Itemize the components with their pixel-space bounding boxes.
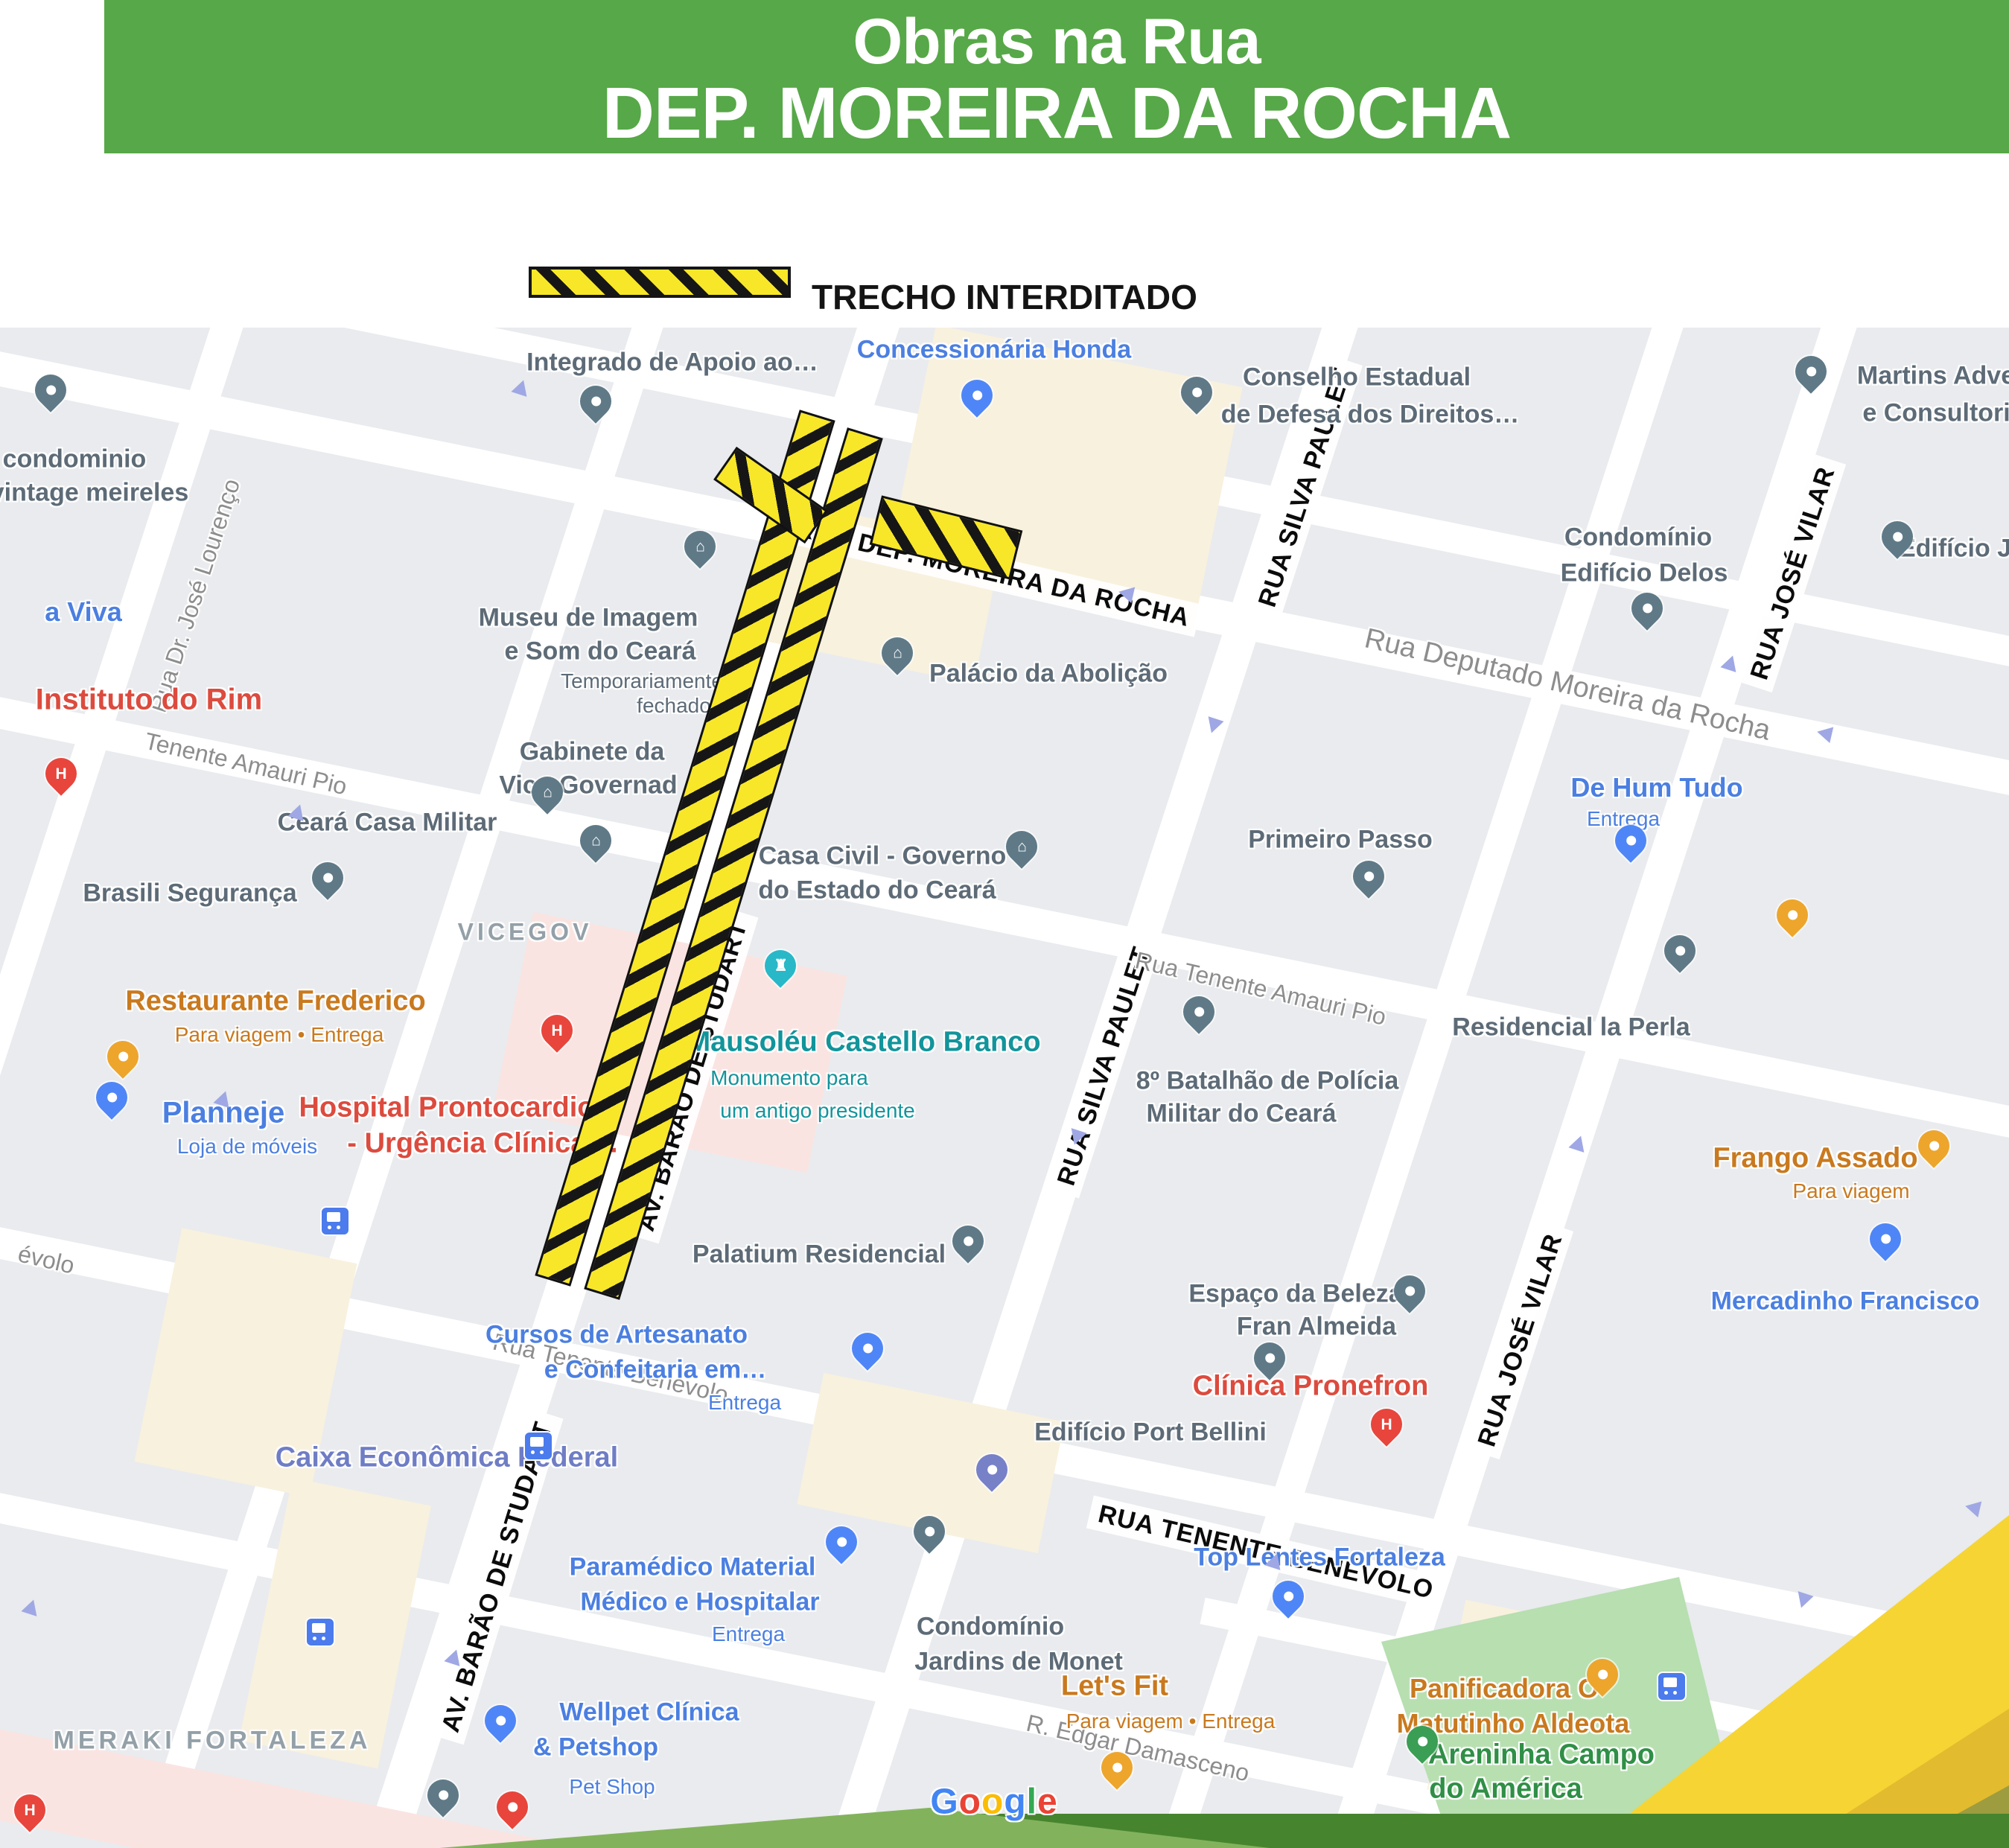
poi-label: e Som do Ceará — [505, 637, 696, 666]
map-pin: ⌂ — [580, 825, 611, 856]
poi-label: Gabinete da — [520, 738, 665, 767]
poi-label: Caixa Econômica Federal — [276, 1442, 618, 1474]
poi-pin-icon — [1346, 854, 1390, 898]
map-pin: H — [1371, 1409, 1402, 1440]
museum-pin-icon: ⌂ — [999, 824, 1043, 868]
hospital-pin-icon: H — [39, 751, 83, 795]
google-logo-letter: l — [1027, 1782, 1037, 1822]
map-pin — [485, 1705, 516, 1736]
poi-pin-icon — [1095, 1745, 1139, 1789]
poi-label: Mausoléu Castello Branco — [687, 1027, 1040, 1059]
map-pin — [1664, 935, 1696, 966]
museum-pin-icon: ⌂ — [678, 524, 722, 568]
map-pin — [107, 1041, 139, 1072]
hospital-pin-icon: H — [1364, 1402, 1408, 1446]
poi-pin-icon — [1658, 928, 1701, 972]
map-pin: ⌂ — [1006, 831, 1037, 862]
map-pin — [427, 1780, 459, 1811]
poi-label: Conselho Estadual — [1243, 363, 1471, 392]
poi-label: Loja de móveis — [177, 1135, 317, 1159]
header-title-line2: DEP. MOREIRA DA ROCHA — [104, 76, 2009, 150]
legend-label: TRECHO INTERDITADO — [812, 249, 1197, 317]
poi-pin-icon — [970, 1447, 1013, 1491]
poi-pin-icon — [1247, 1336, 1291, 1380]
poi-label: um antigo presidente — [720, 1099, 915, 1123]
museum-pin-icon: ⌂ — [573, 818, 617, 862]
google-logo-letter: o — [959, 1782, 981, 1822]
poi-label: Paramédico Material — [570, 1553, 816, 1582]
poi-pin-icon — [1177, 990, 1220, 1033]
map-pin — [1870, 1223, 1901, 1255]
poi-label: Entrega — [708, 1391, 781, 1415]
poi-label: Residencial la Perla — [1452, 1013, 1690, 1042]
map-pin — [961, 380, 993, 411]
map-pin: H — [45, 758, 77, 789]
google-logo-letter: e — [1037, 1782, 1058, 1822]
poi-label: do Estado do Ceará — [758, 876, 996, 905]
map-pin: ⌂ — [882, 637, 913, 669]
poi-pin-icon — [573, 379, 617, 423]
poi-label: fechado — [637, 694, 711, 718]
poi-label: Frango Assado — [1713, 1143, 1917, 1175]
poi-label: Para viagem — [1792, 1179, 1909, 1203]
map-pin — [1254, 1342, 1285, 1374]
poi-pin-icon — [89, 1075, 133, 1119]
poi-label: Instituto do Rim — [36, 684, 262, 717]
poi-label: Clínica Pronefron — [1193, 1371, 1429, 1403]
poi-label: Hospital Prontocardio — [299, 1092, 595, 1124]
poi-pin-icon — [845, 1326, 889, 1370]
poi-label: Restaurante Frederico — [125, 986, 425, 1018]
poi-label: Let's Fit — [1061, 1671, 1168, 1703]
poi-label: Areninha Campo — [1428, 1739, 1655, 1771]
header-title-line1: Obras na Rua — [104, 7, 2009, 76]
poi-label: e Confeitaria em… — [544, 1356, 767, 1385]
poi-label: vintage meireles — [0, 479, 188, 508]
poi-pin-icon — [28, 368, 72, 412]
transit-icon — [305, 1617, 335, 1647]
poi-label: Casa Civil - Governo — [759, 842, 1007, 871]
poi-pin-icon — [1789, 349, 1833, 393]
map-pin — [952, 1226, 984, 1257]
transit-icon — [523, 1431, 553, 1461]
poi-label: Mercadinho Francisco — [1711, 1287, 1980, 1316]
map-pin — [1918, 1130, 1949, 1162]
map-pin — [1587, 1659, 1618, 1690]
direction-arrow — [511, 377, 531, 397]
map-pin — [1407, 1726, 1438, 1757]
map-pin: ⌂ — [532, 777, 563, 808]
map-pin — [976, 1454, 1007, 1485]
map-pin — [1101, 1752, 1133, 1783]
google-logo-letter: o — [981, 1782, 1004, 1822]
map-pin: ⌂ — [684, 531, 716, 562]
poi-label: Integrado de Apoio ao… — [526, 348, 818, 377]
infographic-page: Obras na Rua DEP. MOREIRA DA ROCHA TRECH… — [0, 0, 2009, 1848]
poi-label: Concessionária Honda — [857, 336, 1131, 365]
hospital-pin-icon: H — [535, 1008, 579, 1052]
poi-pin-icon — [1387, 1269, 1431, 1313]
map-pin — [1882, 521, 1913, 552]
poi-label: Pet Shop — [569, 1775, 655, 1799]
poi-label: Panificadora O — [1410, 1673, 1599, 1704]
museum-pin-icon: ⌂ — [875, 631, 919, 675]
poi-label: e Consultoria — [1862, 399, 2009, 428]
poi-label: VICEGOV — [458, 919, 593, 946]
poi-pin-icon — [1770, 893, 1814, 937]
poi-pin-icon — [955, 373, 999, 417]
poi-label: Condomínio — [917, 1613, 1064, 1642]
map-pin — [1777, 899, 1808, 931]
map-pin: ♜ — [765, 950, 796, 981]
hospital-pin-icon: H — [7, 1788, 51, 1832]
poi-label: de Defesa dos Direitos… — [1221, 401, 1520, 430]
map-pin — [1394, 1275, 1425, 1307]
poi-pin-icon — [1400, 1719, 1444, 1763]
poi-label: 8º Batalhão de Polícia — [1136, 1067, 1399, 1096]
poi-pin-icon — [490, 1785, 534, 1829]
poi-label: Top Lentes Fortaleza — [1194, 1543, 1445, 1573]
poi-label: Ceará Casa Militar — [278, 809, 497, 838]
poi-pin-icon — [101, 1034, 144, 1078]
monument-pin-icon: ♜ — [758, 943, 802, 987]
poi-label: a Viva — [45, 596, 121, 628]
map-pin — [1615, 825, 1646, 856]
map-pin — [1181, 377, 1212, 408]
map-pin — [914, 1516, 945, 1547]
poi-label: & Petshop — [533, 1733, 658, 1762]
poi-pin-icon — [1625, 586, 1669, 630]
poi-label: do América — [1429, 1774, 1582, 1806]
poi-pin-icon — [421, 1773, 465, 1817]
map-pin — [1631, 593, 1663, 624]
poi-label: Espaço da Beleza — [1188, 1280, 1402, 1309]
map-pin — [826, 1526, 857, 1558]
map-pin: H — [14, 1794, 45, 1826]
direction-arrow — [1964, 1498, 1981, 1517]
poi-label: Condomínio — [1564, 523, 1712, 552]
poi-pin-icon — [478, 1698, 522, 1742]
google-logo: Google — [930, 1782, 1057, 1823]
poi-pin-icon — [1911, 1124, 1955, 1167]
poi-label: Médico e Hospitalar — [580, 1588, 819, 1617]
poi-pin-icon — [1174, 370, 1218, 414]
poi-pin-icon — [1875, 514, 1919, 558]
map-canvas: RUA DEP. MOREIRA DA ROCHARUA SILVA PAULE… — [0, 328, 2009, 1848]
poi-label: Cursos de Artesanato — [485, 1321, 748, 1350]
poi-label: condominio — [3, 445, 147, 474]
transit-icon — [320, 1206, 350, 1236]
poi-pin-icon — [946, 1219, 990, 1263]
poi-label: MERAKI FORTALEZA — [54, 1727, 372, 1756]
legend-hatch-bar — [529, 267, 791, 298]
poi-label: Museu de Imagem — [479, 604, 698, 633]
direction-arrow — [21, 1597, 41, 1616]
google-logo-letter: g — [1004, 1782, 1026, 1822]
museum-pin-icon: ⌂ — [525, 770, 569, 814]
google-logo-letter: G — [930, 1782, 958, 1822]
poi-label: Edifício Port Bellini — [1034, 1418, 1267, 1447]
poi-label: Monumento para — [710, 1066, 868, 1090]
poi-label: Edifício Delos — [1561, 559, 1728, 588]
poi-pin-icon — [305, 856, 349, 899]
poi-label: Palácio da Abolição — [929, 660, 1168, 689]
map-pin: H — [541, 1015, 573, 1046]
poi-label: Para viagem • Entrega — [1066, 1710, 1276, 1733]
map-pin — [312, 862, 343, 893]
map-pin — [852, 1333, 883, 1364]
poi-pin-icon — [1608, 818, 1652, 862]
map-pin — [580, 386, 611, 417]
transit-icon — [1657, 1672, 1687, 1701]
poi-label: Wellpet Clínica — [559, 1698, 739, 1727]
poi-label: Vice-Governad — [499, 771, 677, 800]
poi-pin-icon — [907, 1509, 951, 1553]
header-banner: Obras na Rua DEP. MOREIRA DA ROCHA — [104, 0, 2009, 153]
map-pin — [35, 375, 66, 406]
poi-label: Para viagem • Entrega — [175, 1023, 384, 1047]
poi-label: Palatium Residencial — [693, 1240, 946, 1269]
poi-label: Fran Almeida — [1237, 1313, 1396, 1342]
poi-label: Entrega — [712, 1622, 785, 1646]
map-pin — [1795, 356, 1827, 387]
map-pin — [1353, 861, 1384, 892]
poi-label: Martins Adve — [1857, 362, 2009, 391]
poi-label: De Hum Tudo — [1570, 772, 1742, 803]
map-pin — [1183, 996, 1214, 1027]
map-pin — [96, 1082, 127, 1113]
poi-pin-icon — [819, 1520, 863, 1564]
poi-label: Militar do Ceará — [1146, 1100, 1336, 1129]
poi-label: Primeiro Passo — [1248, 826, 1433, 855]
poi-pin-icon — [1266, 1574, 1310, 1618]
poi-label: Edifício Ja — [1899, 535, 2009, 564]
poi-label: Brasili Segurança — [83, 879, 296, 908]
poi-pin-icon — [1863, 1217, 1907, 1261]
poi-label: Temporariamente — [561, 669, 723, 693]
map-pin — [1273, 1581, 1304, 1612]
map-pin — [497, 1791, 528, 1823]
poi-pin-icon — [1580, 1652, 1624, 1696]
